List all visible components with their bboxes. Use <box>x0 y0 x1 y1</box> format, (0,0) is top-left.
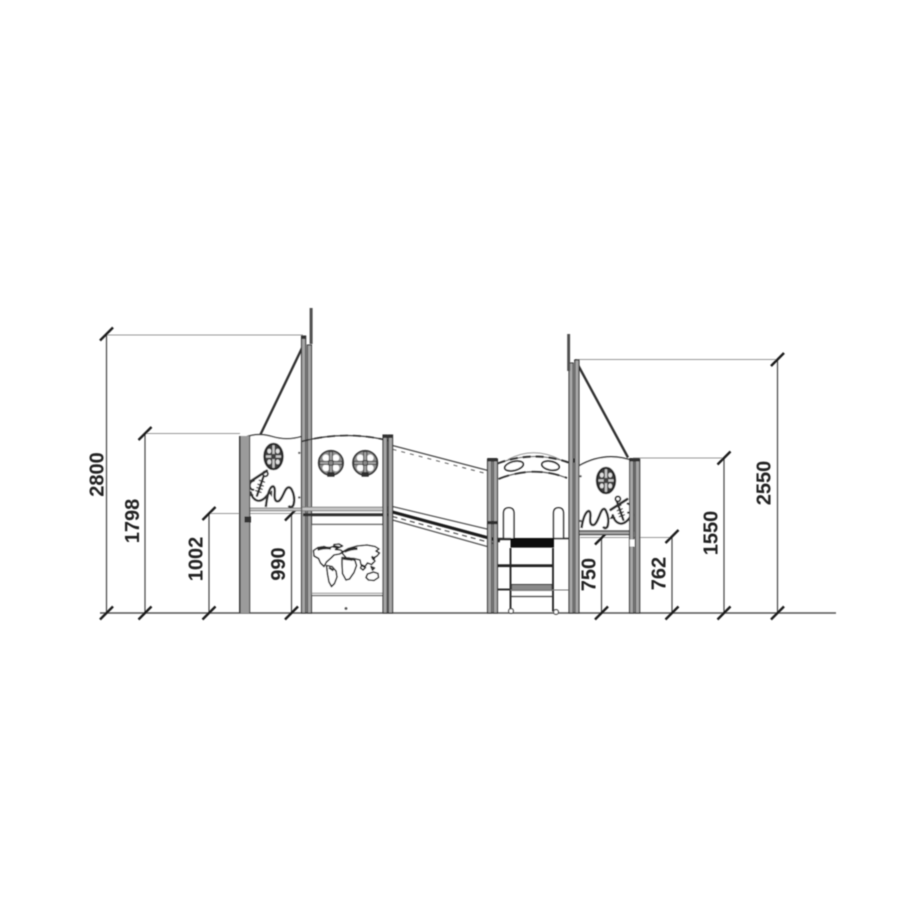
svg-text:2800: 2800 <box>87 452 109 497</box>
svg-text:750: 750 <box>579 558 601 591</box>
svg-text:1798: 1798 <box>122 499 144 544</box>
svg-text:762: 762 <box>649 557 671 590</box>
svg-text:1550: 1550 <box>701 511 723 556</box>
svg-text:2550: 2550 <box>754 461 776 506</box>
svg-text:990: 990 <box>268 547 290 580</box>
svg-text:1002: 1002 <box>186 537 208 582</box>
